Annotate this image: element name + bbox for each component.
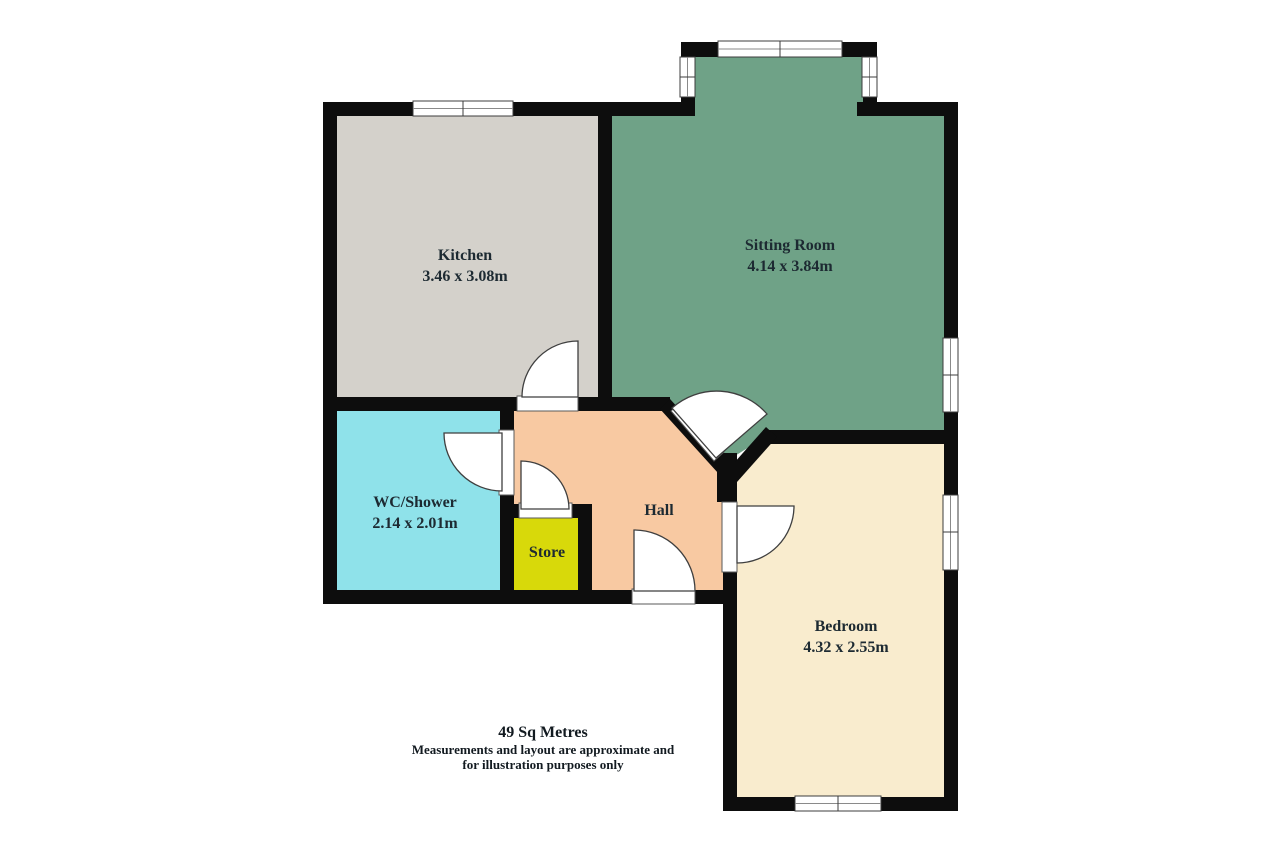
room-store bbox=[507, 511, 585, 597]
wall-store-right bbox=[578, 510, 592, 604]
wall-left bbox=[323, 102, 337, 604]
wall-wc-hall bbox=[500, 397, 514, 604]
sitting-room-window bbox=[943, 338, 958, 412]
floorplan-drawing bbox=[0, 0, 1280, 853]
bedroom-door-frame bbox=[722, 502, 737, 572]
bedroom-side-window bbox=[943, 495, 958, 570]
bay-left-window bbox=[680, 57, 695, 97]
kitchen-window bbox=[413, 101, 513, 116]
bay-right-window bbox=[862, 57, 877, 97]
floorplan-canvas: Kitchen 3.46 x 3.08m Sitting Room 4.14 x… bbox=[0, 0, 1280, 853]
wall-sitting-bedroom bbox=[763, 430, 958, 444]
room-bedroom bbox=[730, 441, 951, 804]
bedroom-bottom-window bbox=[795, 796, 881, 811]
kitchen-door-frame bbox=[517, 396, 578, 411]
bay-top-window bbox=[718, 41, 842, 57]
wall-right bbox=[944, 102, 958, 811]
wall-kitchen-sitting bbox=[598, 102, 612, 411]
